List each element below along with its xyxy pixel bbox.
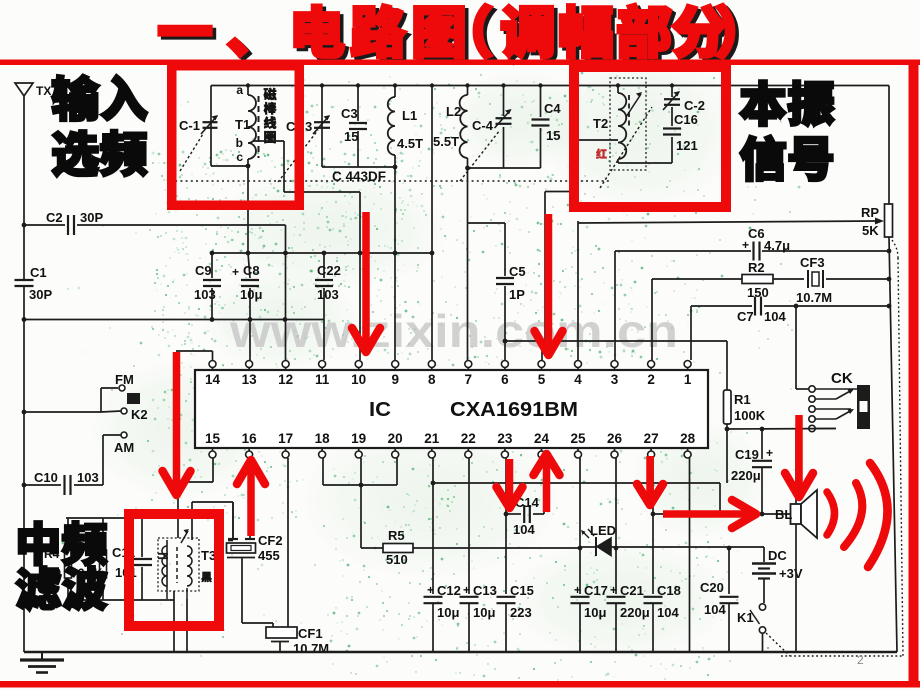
svg-text:C8: C8 [243, 263, 260, 278]
svg-text:9: 9 [391, 372, 399, 387]
svg-text:C18: C18 [657, 583, 681, 598]
svg-text:20: 20 [388, 431, 403, 446]
svg-text:RP: RP [861, 205, 879, 220]
svg-text:2: 2 [857, 653, 864, 667]
svg-text:L1: L1 [402, 108, 417, 123]
svg-text:T3: T3 [201, 548, 216, 563]
svg-text:b: b [236, 136, 243, 150]
svg-text:4.7μ: 4.7μ [764, 238, 790, 253]
svg-text:19: 19 [351, 431, 366, 446]
svg-text:C-4: C-4 [472, 118, 494, 133]
svg-text:+: + [574, 583, 581, 597]
svg-text:C10: C10 [34, 470, 58, 485]
svg-text:1P: 1P [509, 287, 525, 302]
svg-text:c: c [236, 150, 243, 164]
svg-text:C21: C21 [620, 583, 644, 598]
svg-text:11: 11 [315, 372, 330, 387]
svg-text:10μ: 10μ [437, 605, 459, 620]
svg-text:C19: C19 [735, 447, 759, 462]
svg-text:1: 1 [684, 372, 692, 387]
svg-text:103: 103 [77, 470, 99, 485]
svg-text:24: 24 [534, 431, 550, 446]
svg-text:220μ: 220μ [620, 605, 650, 620]
svg-text:5: 5 [538, 372, 546, 387]
svg-text:R5: R5 [388, 528, 405, 543]
svg-text:5.5T: 5.5T [433, 134, 459, 149]
svg-text:103: 103 [317, 287, 339, 302]
svg-text:R1: R1 [734, 392, 751, 407]
svg-text:C1: C1 [30, 265, 47, 280]
svg-text:455: 455 [258, 548, 280, 563]
svg-text:CXA1691BM: CXA1691BM [450, 399, 578, 421]
svg-text:104: 104 [657, 605, 679, 620]
svg-text:+: + [610, 583, 617, 597]
svg-text:30P: 30P [29, 287, 52, 302]
svg-text:27: 27 [644, 431, 659, 446]
svg-text:C15: C15 [510, 583, 534, 598]
svg-text:FM: FM [115, 372, 134, 387]
svg-text:CF3: CF3 [800, 255, 825, 270]
svg-text:C20: C20 [700, 580, 724, 595]
svg-text:10μ: 10μ [473, 605, 495, 620]
svg-text:28: 28 [680, 431, 696, 446]
svg-text:18: 18 [315, 431, 331, 446]
svg-text:3: 3 [611, 372, 619, 387]
svg-text:C13: C13 [473, 583, 497, 598]
svg-text:220μ: 220μ [731, 468, 761, 483]
svg-text:AM: AM [114, 440, 134, 455]
svg-text:TX: TX [36, 84, 51, 98]
svg-text:3: 3 [305, 119, 312, 134]
svg-text:16: 16 [242, 431, 258, 446]
svg-text:C16: C16 [674, 112, 698, 127]
svg-text:121: 121 [676, 138, 698, 153]
svg-text:103: 103 [194, 287, 216, 302]
svg-text:22: 22 [461, 431, 476, 446]
svg-text:10.7M: 10.7M [796, 290, 832, 305]
svg-text:21: 21 [424, 431, 440, 446]
svg-text:K2: K2 [131, 407, 148, 422]
svg-text:BL: BL [775, 507, 792, 522]
svg-text:100K: 100K [734, 408, 766, 423]
svg-text:+: + [463, 583, 470, 597]
svg-text:10μ: 10μ [240, 287, 262, 302]
svg-text:C7: C7 [737, 309, 754, 324]
svg-text:+3V: +3V [779, 566, 803, 581]
svg-text:C17: C17 [584, 583, 608, 598]
svg-text:CF2: CF2 [258, 533, 283, 548]
svg-text:DC: DC [768, 548, 787, 563]
svg-text:150: 150 [747, 285, 769, 300]
svg-text:10μ: 10μ [584, 605, 606, 620]
svg-text:15: 15 [546, 128, 560, 143]
svg-text:23: 23 [497, 431, 513, 446]
svg-text:www.zixin.com.cn: www.zixin.com.cn [229, 305, 678, 357]
svg-text:17: 17 [278, 431, 293, 446]
svg-text:8: 8 [428, 372, 436, 387]
svg-text:a: a [236, 83, 243, 97]
svg-text:104: 104 [704, 602, 726, 617]
svg-text:4: 4 [574, 372, 582, 387]
svg-text:13: 13 [242, 372, 258, 387]
svg-text:223: 223 [510, 605, 532, 620]
svg-text:+: + [427, 583, 434, 597]
svg-text:5K: 5K [862, 223, 879, 238]
svg-text:10: 10 [351, 372, 366, 387]
svg-text:C2: C2 [46, 210, 63, 225]
svg-text:CK: CK [831, 370, 853, 387]
svg-text:C 443DF: C 443DF [332, 169, 386, 184]
svg-text:T1: T1 [235, 117, 250, 132]
svg-text:R2: R2 [748, 260, 765, 275]
svg-text:C3: C3 [341, 106, 358, 121]
svg-text:4.5T: 4.5T [397, 136, 423, 151]
svg-text:IC: IC [369, 399, 391, 421]
svg-text:C-1: C-1 [179, 118, 200, 133]
svg-text:510: 510 [386, 552, 408, 567]
svg-text:C9: C9 [195, 263, 212, 278]
svg-text:104: 104 [764, 309, 786, 324]
svg-text:6: 6 [501, 372, 509, 387]
svg-text:104: 104 [513, 522, 535, 537]
svg-text:15: 15 [344, 129, 358, 144]
svg-text:C22: C22 [317, 263, 341, 278]
svg-text:26: 26 [607, 431, 623, 446]
svg-text:L2: L2 [446, 104, 461, 119]
svg-text:+: + [232, 265, 239, 279]
svg-text:C-2: C-2 [684, 98, 705, 113]
svg-text:10.7M: 10.7M [293, 641, 329, 656]
svg-text:7: 7 [465, 372, 473, 387]
svg-text:30P: 30P [80, 210, 103, 225]
svg-text:C12: C12 [437, 583, 461, 598]
svg-text:2: 2 [647, 372, 655, 387]
svg-text:CF1: CF1 [298, 626, 323, 641]
svg-text:25: 25 [570, 431, 586, 446]
svg-text:C6: C6 [748, 226, 765, 241]
svg-text:14: 14 [205, 372, 221, 387]
svg-text:15: 15 [205, 431, 221, 446]
svg-text:C5: C5 [509, 264, 526, 279]
svg-text:12: 12 [278, 372, 293, 387]
svg-text:K1: K1 [737, 610, 754, 625]
svg-text:+: + [766, 446, 773, 460]
svg-text:C4: C4 [544, 101, 561, 116]
svg-text:T2: T2 [593, 116, 608, 131]
